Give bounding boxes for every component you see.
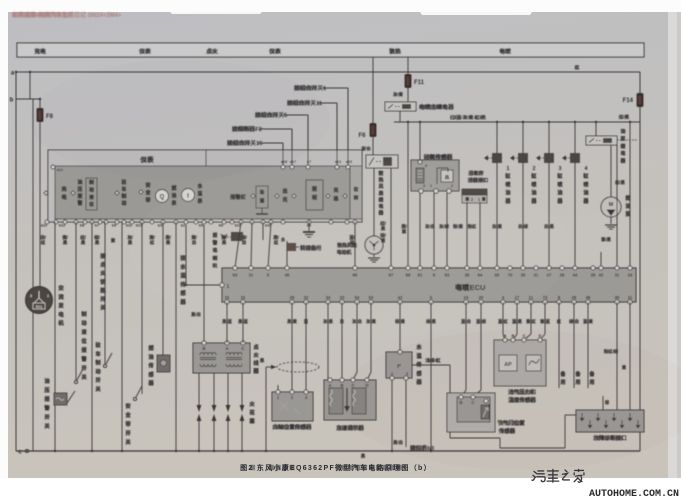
svg-text:图2 东风小康EQ6362PF微型汽车电路原理图（b）: 图2 东风小康EQ6362PF微型汽车电路原理图（b） [240,463,432,472]
svg-text:AUTOHOME.COM.CN: AUTOHOME.COM.CN [589,489,679,500]
